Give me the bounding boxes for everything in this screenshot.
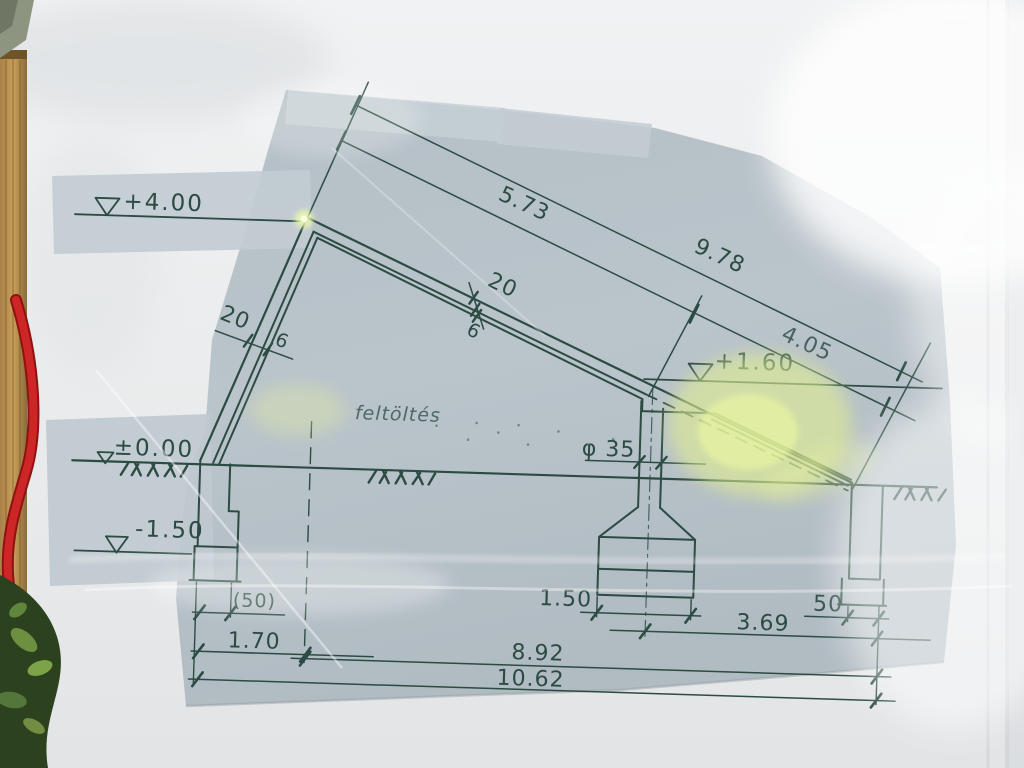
- scene: +4.00 ±0.00 -1.50 +1.60 5.73 9.78 4.05 2…: [0, 0, 1024, 768]
- glare-yellow-core: [698, 394, 798, 470]
- dim-label-phi35: φ 35: [581, 436, 635, 463]
- glare-yellow-small: [250, 384, 346, 436]
- glare-top-left: [240, 80, 420, 156]
- glare-bottom-left: [150, 555, 450, 615]
- paper-shadow: [20, 135, 160, 375]
- note-backfill: feltöltés: [355, 402, 442, 427]
- dim-label-892: 8.92: [511, 640, 565, 667]
- dim-label-369: 3.69: [736, 610, 790, 637]
- level-label-roof-peak: +4.00: [123, 189, 204, 218]
- photo-of-technical-drawing: +4.00 ±0.00 -1.50 +1.60 5.73 9.78 4.05 2…: [0, 0, 1024, 768]
- sun-glint-core: [301, 216, 308, 223]
- dim-label-170: 1.70: [227, 628, 281, 655]
- level-label-foundation: -1.50: [135, 516, 205, 544]
- dim-label-1062: 10.62: [496, 666, 565, 693]
